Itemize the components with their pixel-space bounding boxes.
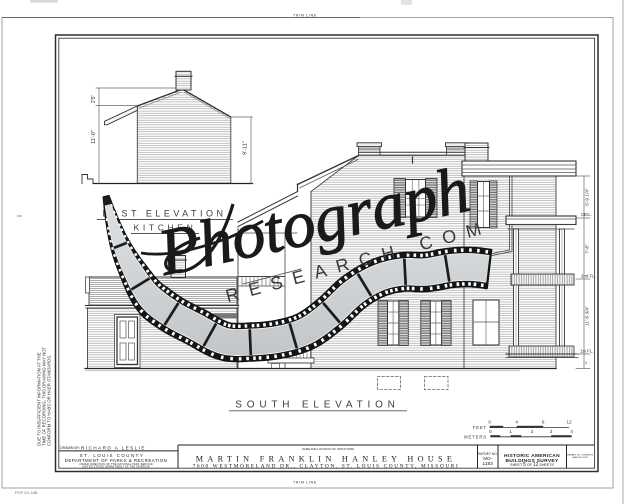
svg-text:DRAWN BY:: DRAWN BY: xyxy=(60,446,80,450)
svg-text:2nd FL.: 2nd FL. xyxy=(581,274,596,279)
svg-text:7600 WESTMORELAND DR., CLAYT: 7600 WESTMORELAND DR., CLAYTON, ST. LOUI… xyxy=(193,464,460,470)
svg-text:0: 0 xyxy=(488,420,491,425)
svg-text:1st FL.: 1st FL. xyxy=(580,349,593,354)
svg-text:MARTIN FRANKLIN HANLEY HOUSE: MARTIN FRANKLIN HANLEY HOUSE xyxy=(196,455,456,464)
svg-text:3: 3 xyxy=(550,429,553,434)
svg-text:8: 8 xyxy=(542,420,545,425)
svg-text:NAME AND LOCATION OF STRUCTURE: NAME AND LOCATION OF STRUCTURE xyxy=(302,447,354,451)
svg-text:TRIM LINE: TRIM LINE xyxy=(293,14,317,18)
svg-text:UNITED STATES DEPARTMENT OF TH: UNITED STATES DEPARTMENT OF THE INTERIOR xyxy=(82,466,149,469)
svg-text:7'-8": 7'-8" xyxy=(585,244,591,254)
svg-text:TRIM LINE: TRIM LINE xyxy=(293,481,317,485)
svg-text:F.R.P. CO. 4-58: F.R.P. CO. 4-58 xyxy=(15,491,37,495)
svg-text:9'-11": 9'-11" xyxy=(243,141,249,155)
svg-text:SOUTH ELEVATION: SOUTH ELEVATION xyxy=(235,400,399,411)
svg-text:11'-5 3/4": 11'-5 3/4" xyxy=(585,306,591,326)
svg-text:CONFORM TO HABS OR HAER STANDA: CONFORM TO HABS OR HAER STANDARDS. xyxy=(47,355,52,446)
svg-text:CEIL.: CEIL. xyxy=(581,212,592,217)
svg-text:11'-0": 11'-0" xyxy=(91,130,97,144)
svg-text:12: 12 xyxy=(567,420,573,425)
svg-text:1: 1 xyxy=(509,429,512,434)
svg-text:5'-9 1/4": 5'-9 1/4" xyxy=(585,188,591,206)
svg-text:MO-: MO- xyxy=(483,456,492,461)
svg-text:2: 2 xyxy=(531,429,534,434)
svg-text:FEET: FEET xyxy=(473,425,487,430)
svg-text:RICHARD A LESLIE: RICHARD A LESLIE xyxy=(81,445,146,450)
svg-text:4: 4 xyxy=(515,420,518,425)
svg-text:0: 0 xyxy=(489,429,492,434)
svg-text:4: 4 xyxy=(570,429,573,434)
svg-text:2'5": 2'5" xyxy=(91,95,97,104)
svg-text:METERS: METERS xyxy=(464,435,487,440)
svg-text:1193: 1193 xyxy=(483,461,494,467)
svg-text:HABS MO-1193: HABS MO-1193 xyxy=(572,456,588,459)
